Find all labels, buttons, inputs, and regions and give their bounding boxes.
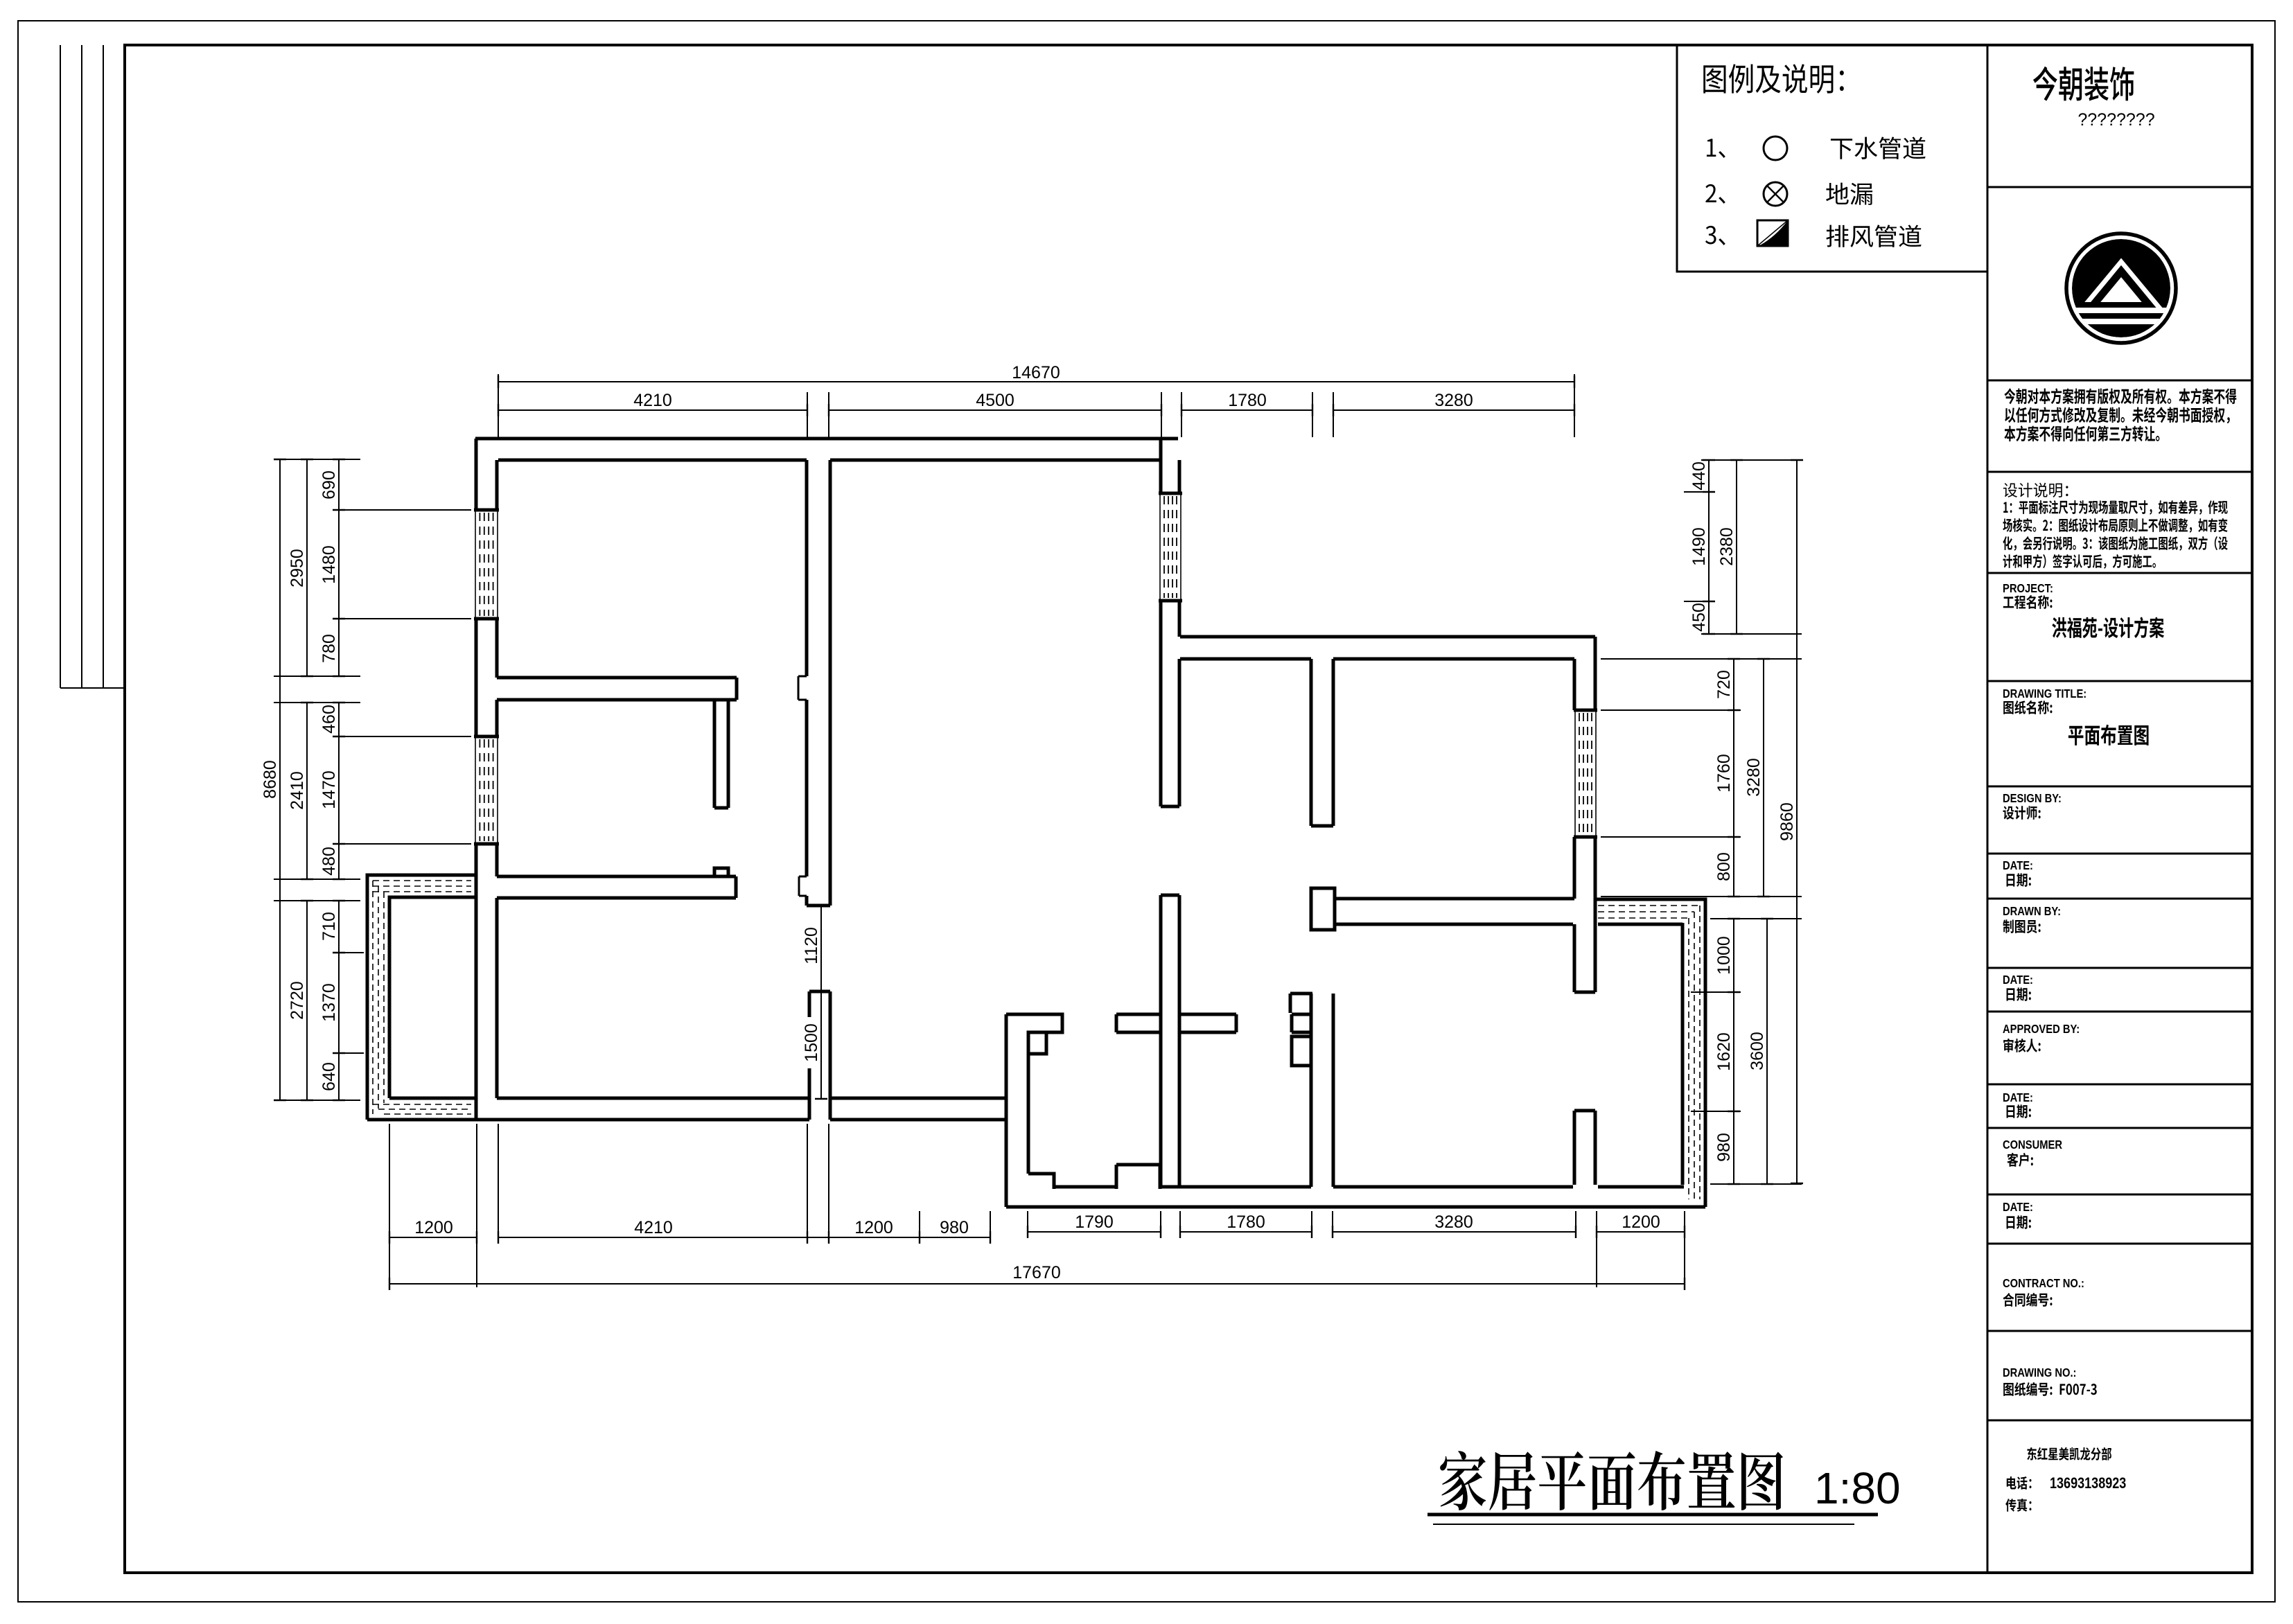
svg-text:CONSUMER: CONSUMER bbox=[2003, 1138, 2062, 1152]
svg-text:450: 450 bbox=[1689, 603, 1709, 632]
svg-text:14670: 14670 bbox=[1012, 363, 1060, 382]
svg-text:1500: 1500 bbox=[802, 1023, 821, 1062]
svg-text:3280: 3280 bbox=[1434, 391, 1473, 410]
svg-text:710: 710 bbox=[319, 912, 339, 941]
svg-text:13693138923: 13693138923 bbox=[2050, 1475, 2126, 1492]
svg-text:4210: 4210 bbox=[634, 1218, 673, 1237]
svg-text:1760: 1760 bbox=[1714, 754, 1734, 793]
svg-text:1:80: 1:80 bbox=[1814, 1463, 1901, 1513]
svg-text:1480: 1480 bbox=[319, 545, 339, 584]
svg-text:17670: 17670 bbox=[1012, 1263, 1061, 1282]
svg-text:9860: 9860 bbox=[1777, 802, 1797, 841]
svg-text:3600: 3600 bbox=[1748, 1032, 1767, 1070]
svg-text:1780: 1780 bbox=[1228, 391, 1267, 410]
svg-text:DRAWING NO.:: DRAWING NO.: bbox=[2003, 1366, 2076, 1380]
svg-text:1120: 1120 bbox=[802, 927, 821, 964]
svg-text:1620: 1620 bbox=[1714, 1032, 1734, 1071]
svg-text:780: 780 bbox=[319, 634, 339, 663]
svg-text:1790: 1790 bbox=[1075, 1212, 1114, 1232]
svg-text:DRAWING TITLE:: DRAWING TITLE: bbox=[2003, 687, 2086, 701]
svg-text:1200: 1200 bbox=[1622, 1212, 1660, 1232]
svg-text:3280: 3280 bbox=[1744, 758, 1764, 797]
svg-text:1200: 1200 bbox=[854, 1218, 893, 1237]
svg-text:980: 980 bbox=[940, 1218, 969, 1237]
svg-text:4210: 4210 bbox=[633, 391, 672, 410]
svg-text:????????: ???????? bbox=[2077, 110, 2154, 130]
svg-text:1370: 1370 bbox=[319, 983, 339, 1022]
svg-text:1780: 1780 bbox=[1227, 1212, 1265, 1232]
svg-text:DATE:: DATE: bbox=[2003, 973, 2033, 987]
svg-text:PROJECT:: PROJECT: bbox=[2003, 582, 2053, 596]
svg-text:DATE:: DATE: bbox=[2003, 859, 2033, 873]
svg-text:1000: 1000 bbox=[1714, 936, 1734, 975]
svg-text:1470: 1470 bbox=[319, 770, 339, 809]
svg-text:480: 480 bbox=[319, 847, 339, 876]
svg-text:2380: 2380 bbox=[1717, 527, 1737, 566]
svg-text:720: 720 bbox=[1714, 670, 1734, 699]
svg-text:440: 440 bbox=[1689, 461, 1709, 491]
svg-text:DESIGN BY:: DESIGN BY: bbox=[2003, 792, 2062, 806]
svg-text:2410: 2410 bbox=[288, 771, 307, 810]
svg-text:640: 640 bbox=[319, 1062, 339, 1091]
svg-text:DATE:: DATE: bbox=[2003, 1091, 2033, 1105]
svg-text:2720: 2720 bbox=[288, 981, 307, 1020]
svg-text:APPROVED BY:: APPROVED BY: bbox=[2003, 1023, 2080, 1036]
svg-text:1200: 1200 bbox=[414, 1218, 453, 1237]
svg-text:800: 800 bbox=[1714, 852, 1734, 881]
svg-text:2950: 2950 bbox=[288, 549, 307, 588]
svg-text:3280: 3280 bbox=[1434, 1212, 1473, 1232]
svg-text:CONTRACT NO.:: CONTRACT NO.: bbox=[2003, 1277, 2084, 1291]
svg-text:1490: 1490 bbox=[1689, 527, 1709, 566]
svg-text:980: 980 bbox=[1714, 1133, 1734, 1162]
svg-text:4500: 4500 bbox=[976, 391, 1014, 410]
svg-text:DRAWN BY:: DRAWN BY: bbox=[2003, 905, 2061, 919]
svg-text:8680: 8680 bbox=[261, 760, 280, 799]
svg-text:460: 460 bbox=[319, 705, 339, 734]
svg-text:DATE:: DATE: bbox=[2003, 1201, 2033, 1215]
svg-text:690: 690 bbox=[319, 470, 339, 500]
